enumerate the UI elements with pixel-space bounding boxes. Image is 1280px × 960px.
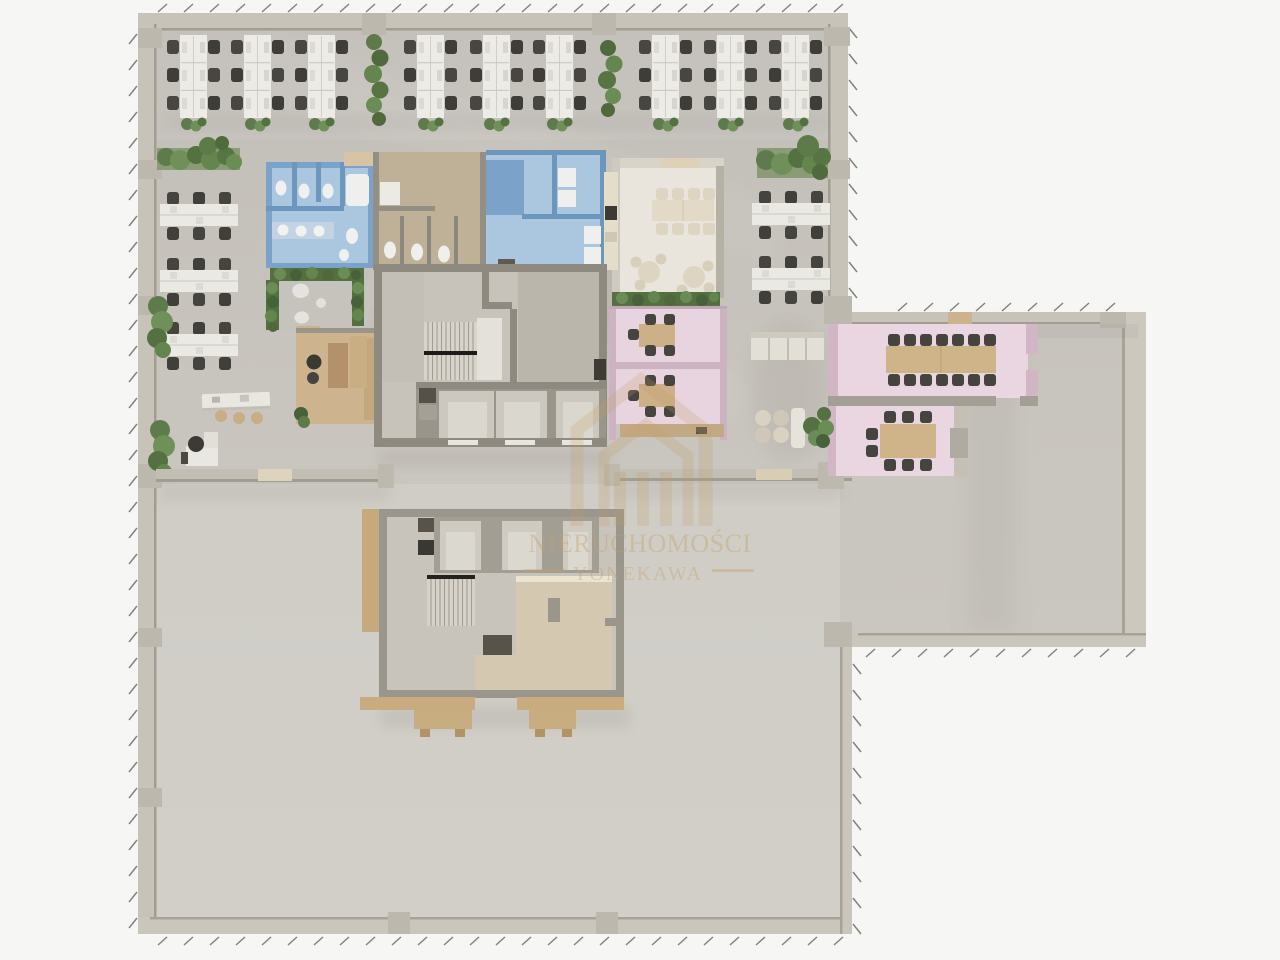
svg-text:YONEKAWA: YONEKAWA — [573, 563, 703, 585]
svg-text:NIERUCHOMOŚCI: NIERUCHOMOŚCI — [528, 529, 751, 558]
